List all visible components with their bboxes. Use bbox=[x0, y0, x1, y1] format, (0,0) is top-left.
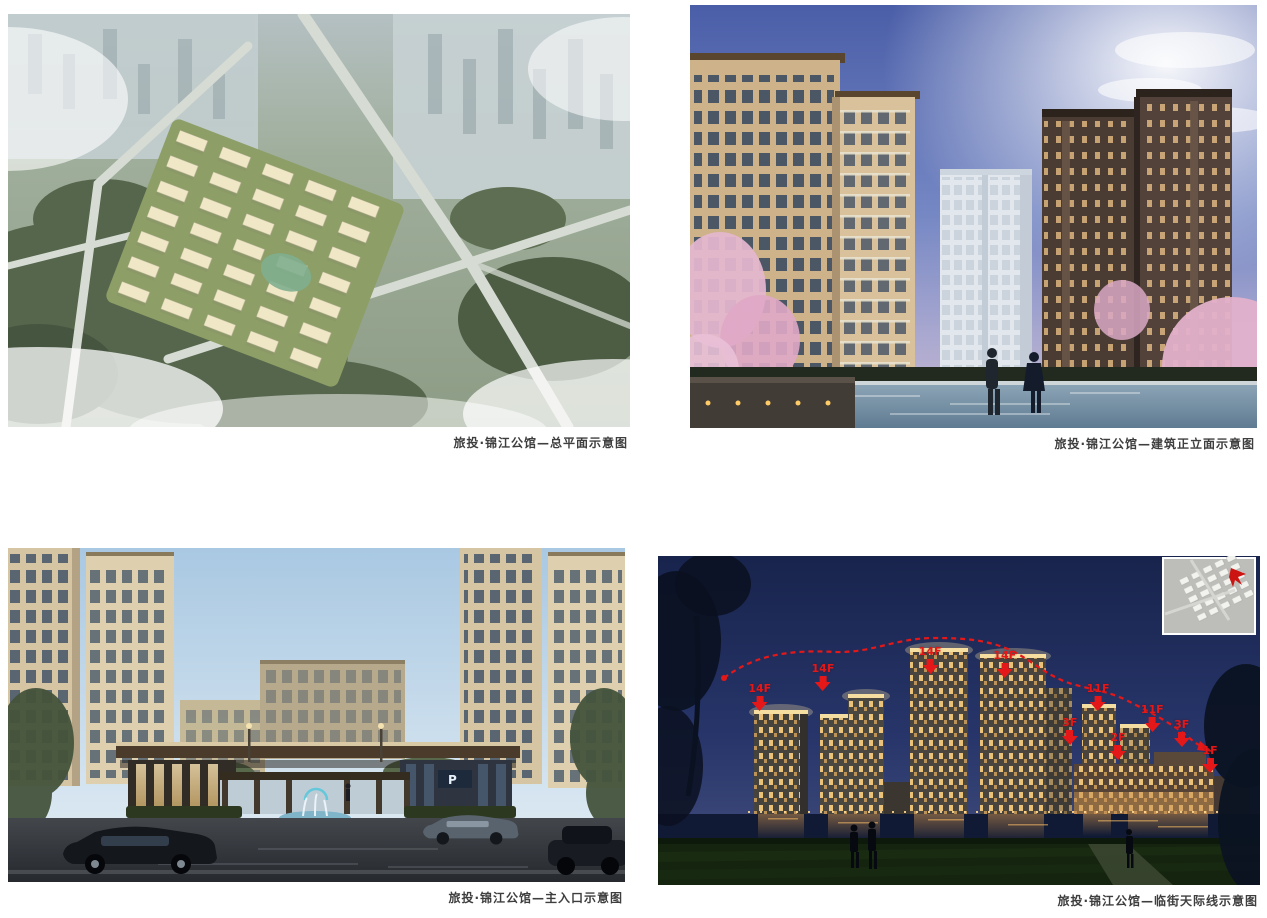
site-plan-render bbox=[8, 14, 630, 427]
skyline-render bbox=[658, 556, 1260, 885]
location-inset-map bbox=[1163, 556, 1256, 634]
elevation-render bbox=[690, 5, 1257, 428]
caption-main-entrance: 旅投·锦江公馆—主入口示意图 bbox=[448, 889, 623, 906]
center-tower bbox=[940, 169, 1032, 383]
caption-street-skyline: 旅投·锦江公馆—临街天际线示意图 bbox=[1057, 892, 1258, 909]
gate-person bbox=[346, 784, 351, 802]
lawn bbox=[658, 844, 1260, 885]
planter-wall bbox=[690, 377, 855, 428]
parking-sign-letter: P bbox=[448, 773, 457, 787]
figure-site-plan: 旅投·锦江公馆—总平面示意图 bbox=[8, 14, 630, 427]
far-hedge bbox=[658, 838, 1260, 845]
figure-main-entrance: P bbox=[8, 548, 625, 882]
entrance-render: P bbox=[8, 548, 625, 882]
report-page: 旅投·锦江公馆—总平面示意图 bbox=[0, 0, 1267, 918]
figure-building-elevation: 旅投·锦江公馆—建筑正立面示意图 bbox=[690, 5, 1257, 428]
figure-street-skyline: 14F14F14F14F11F3F2F11F3F1F 旅投·锦江公馆—临街天际线… bbox=[658, 556, 1260, 885]
caption-building-elevation: 旅投·锦江公馆—建筑正立面示意图 bbox=[1054, 435, 1255, 452]
caption-site-plan: 旅投·锦江公馆—总平面示意图 bbox=[453, 434, 628, 451]
